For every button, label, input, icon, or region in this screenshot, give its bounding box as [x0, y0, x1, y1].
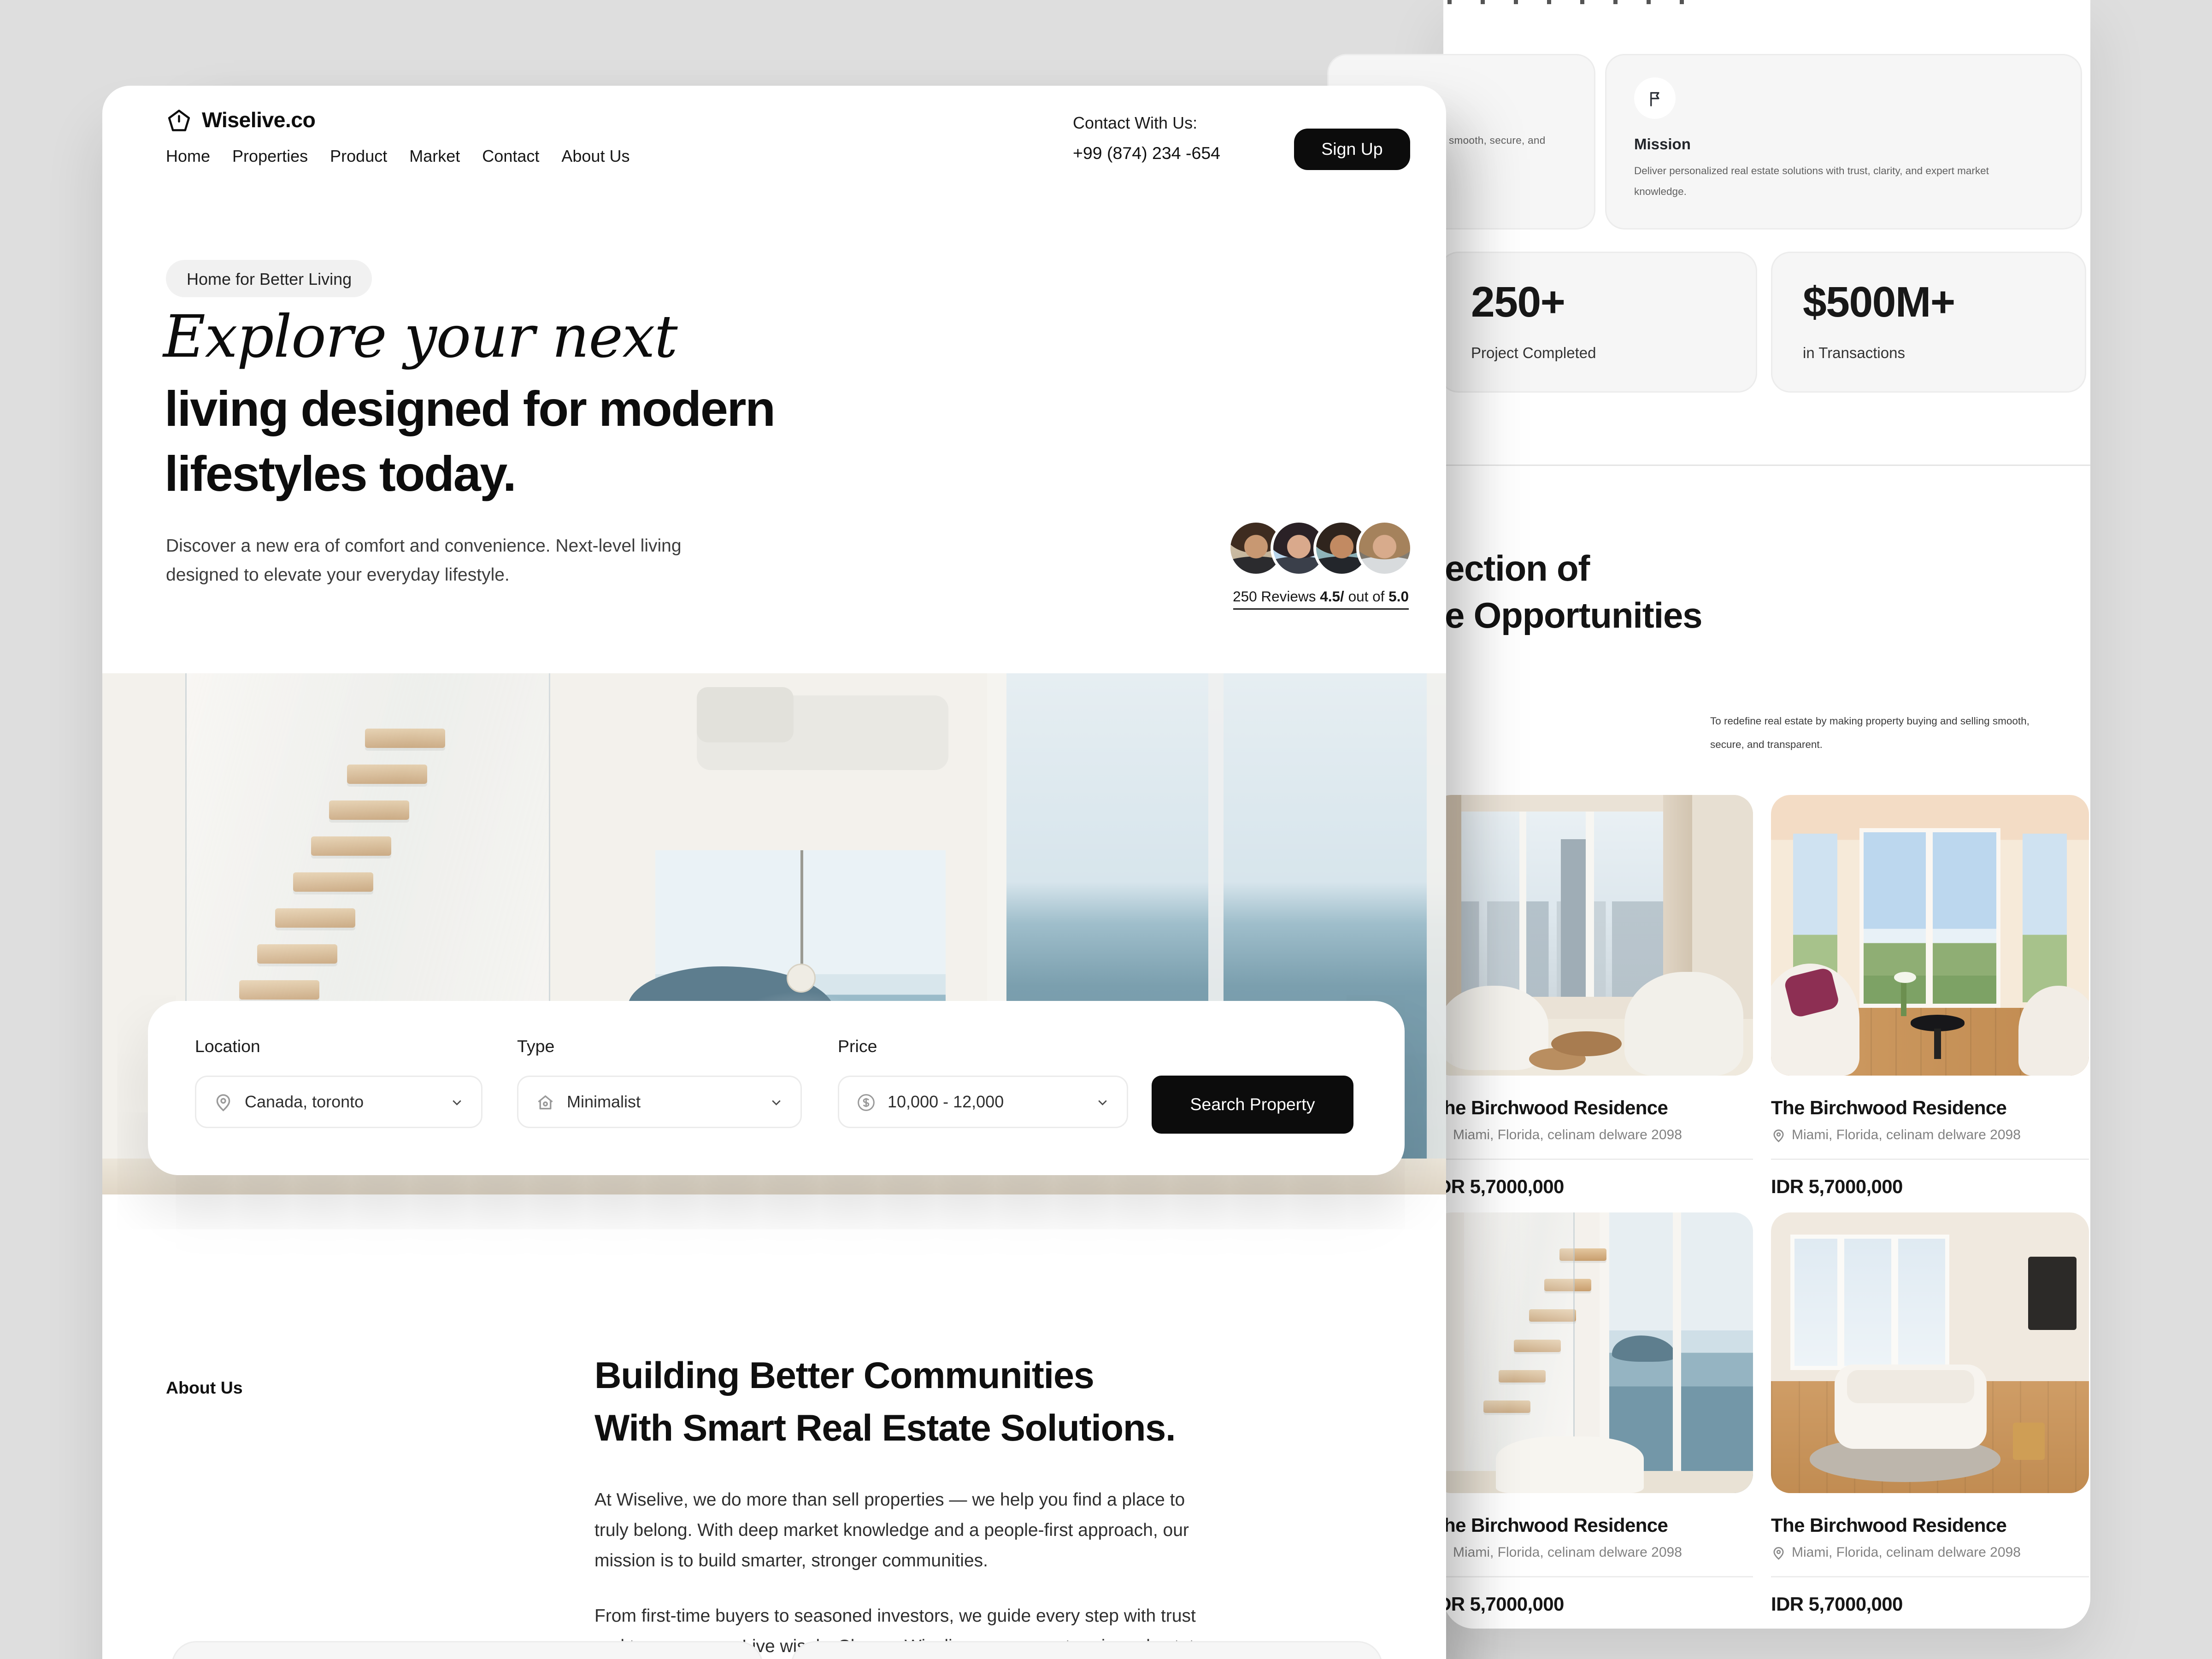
back-page: smooth, secure, and Mission Deliver pers…: [1443, 0, 2090, 1629]
logo[interactable]: Wiselive.co: [166, 108, 315, 134]
decor: [697, 687, 794, 742]
decor: [1935, 1028, 1941, 1059]
pin-icon: [213, 1092, 234, 1112]
decor: [2029, 1257, 2077, 1330]
property-photo-bay-window: [1771, 795, 2089, 1076]
reviews-count: 250 Reviews: [1233, 589, 1316, 606]
property-price: IDR 5,7000,000: [1432, 1593, 1753, 1615]
hero-title-line2: living designed for modern: [165, 380, 775, 438]
property-location: Miami, Florida, celinam delware 2098: [1771, 1128, 2089, 1143]
home-pentagon-icon: [166, 108, 192, 134]
search-property-button[interactable]: Search Property: [1152, 1076, 1353, 1134]
decor: [1901, 980, 1906, 1017]
reviews-max: 5.0: [1388, 589, 1409, 606]
stat-card-projects: 250+ Project Completed: [1439, 252, 1757, 393]
hero-title-line3: lifestyles today.: [165, 445, 516, 503]
decor: [1860, 829, 2000, 1008]
nav-market[interactable]: Market: [409, 147, 460, 166]
stat-label: in Transactions: [1803, 346, 2054, 362]
nav-product[interactable]: Product: [330, 147, 387, 166]
decor: [800, 850, 803, 966]
divider: [1432, 1576, 1753, 1577]
reviews-rating: 4.5/: [1320, 589, 1344, 606]
nav-contact[interactable]: Contact: [482, 147, 539, 166]
price-value: 10,000 - 12,000: [888, 1092, 1084, 1112]
location-select[interactable]: Canada, toronto: [195, 1076, 482, 1128]
feature-card-partial: [791, 1641, 1382, 1659]
nav-home[interactable]: Home: [166, 147, 210, 166]
property-price: IDR 5,7000,000: [1771, 1593, 2089, 1615]
property-search-panel: Location Type Price Canada, toronto Mini…: [148, 1001, 1405, 1175]
location-text: Miami, Florida, celinam delware 2098: [1792, 1546, 2021, 1561]
decor: [2019, 986, 2089, 1076]
stat-value: $500M+: [1803, 278, 2054, 328]
contact-label: Contact With Us:: [1073, 113, 1197, 133]
property-location: Miami, Florida, celinam delware 2098: [1771, 1546, 2089, 1561]
reviews-link[interactable]: 250 Reviews 4.5/ out of 5.0: [1233, 589, 1409, 610]
subtitle-line1: To redefine real estate by making proper…: [1710, 715, 2030, 727]
dollar-coin-icon: [856, 1092, 877, 1112]
divider: [1432, 465, 2090, 466]
decor: [1519, 812, 1527, 997]
chevron-down-icon: [449, 1094, 465, 1110]
decor: [1847, 1370, 1975, 1403]
decor: [2022, 834, 2067, 1002]
property-location: Miami, Florida, celinam delware 2098: [1432, 1128, 1753, 1143]
divider: [1771, 1576, 2089, 1577]
location-text: Miami, Florida, celinam delware 2098: [1792, 1128, 2021, 1143]
hero-description: Discover a new era of comfort and conven…: [166, 531, 682, 589]
subtitle-line2: secure, and transparent.: [1710, 738, 1823, 751]
section-heading-fragment: ection of: [1445, 547, 1589, 590]
contact-phone[interactable]: +99 (874) 234 -654: [1073, 144, 1220, 163]
price-label: Price: [838, 1037, 877, 1056]
about-heading-line2: With Smart Real Estate Solutions.: [594, 1407, 1175, 1450]
section-heading-fragment: e Opportunities: [1445, 594, 1702, 637]
section-subtitle: To redefine real estate by making proper…: [1710, 709, 2067, 756]
property-photo-staircase: [1432, 1212, 1753, 1493]
main-nav: Home Properties Product Market Contact A…: [166, 147, 629, 166]
property-title: The Birchwood Residence: [1432, 1514, 1753, 1536]
mission-text-line2: knowledge.: [1634, 185, 1687, 197]
decor: [1496, 1437, 1644, 1493]
type-value: Minimalist: [567, 1092, 758, 1112]
decor: [1586, 812, 1594, 997]
nav-about-us[interactable]: About Us: [561, 147, 629, 166]
decor: [1427, 673, 1446, 1194]
decor: [1560, 840, 1589, 997]
clipped-text-fragment: [1447, 0, 1685, 4]
stat-card-transactions: $500M+ in Transactions: [1771, 252, 2086, 393]
property-photo-living-room: [1432, 795, 1753, 1076]
logo-text: Wiselive.co: [202, 109, 315, 134]
avatar: [1356, 520, 1413, 577]
front-page: Wiselive.co Home Properties Product Mark…: [102, 86, 1446, 1659]
mission-text-line1: Deliver personalized real estate solutio…: [1634, 165, 1989, 177]
hero-title-italic: Explore your next: [163, 303, 677, 371]
decor: [1551, 1031, 1621, 1056]
divider: [1771, 1159, 2089, 1160]
nav-properties[interactable]: Properties: [232, 147, 308, 166]
property-card[interactable]: The Birchwood Residence Miami, Florida, …: [1432, 795, 1753, 1197]
vision-text-fragment: smooth, secure, and: [1449, 134, 1546, 147]
location-value: Canada, toronto: [245, 1092, 438, 1112]
property-card[interactable]: The Birchwood Residence Miami, Florida, …: [1432, 1212, 1753, 1615]
decor: [1790, 1235, 1949, 1370]
about-paragraph-1: At Wiselive, we do more than sell proper…: [594, 1485, 1212, 1576]
feature-card-partial: [171, 1641, 763, 1659]
property-photo-cozy-room: [1771, 1212, 2089, 1493]
type-label: Type: [517, 1037, 554, 1056]
stat-value: 250+: [1471, 278, 1725, 328]
house-icon: [535, 1092, 556, 1112]
stat-label: Project Completed: [1471, 346, 1725, 362]
property-location: Miami, Florida, celinam delware 2098: [1432, 1546, 1753, 1561]
hero-desc-line2: designed to elevate your everyday lifest…: [166, 564, 510, 585]
pin-icon: [1771, 1128, 1786, 1143]
pin-icon: [1771, 1546, 1786, 1561]
mission-card: Mission Deliver personalized real estate…: [1605, 54, 2082, 229]
mission-text: Deliver personalized real estate solutio…: [1634, 162, 2053, 202]
reviews-of: out of: [1348, 589, 1385, 606]
property-price: IDR 5,7000,000: [1771, 1175, 2089, 1197]
canvas: smooth, secure, and Mission Deliver pers…: [0, 0, 2212, 1659]
hero-badge: Home for Better Living: [166, 260, 372, 297]
property-title: The Birchwood Residence: [1432, 1096, 1753, 1118]
location-text: Miami, Florida, celinam delware 2098: [1453, 1546, 1682, 1561]
price-select[interactable]: 10,000 - 12,000: [838, 1076, 1128, 1128]
about-section-label: About Us: [166, 1378, 243, 1398]
mission-title: Mission: [1634, 137, 2053, 153]
location-label: Location: [195, 1037, 260, 1056]
type-select[interactable]: Minimalist: [517, 1076, 802, 1128]
about-heading-line1: Building Better Communities: [594, 1355, 1094, 1398]
divider: [1432, 1159, 1753, 1160]
flag-icon: [1634, 77, 1676, 119]
decor: [787, 964, 816, 993]
decor: [1673, 1212, 1681, 1493]
decor: [1625, 972, 1743, 1076]
property-title: The Birchwood Residence: [1771, 1514, 2089, 1536]
hero-desc-line1: Discover a new era of comfort and conven…: [166, 535, 682, 556]
location-text: Miami, Florida, celinam delware 2098: [1453, 1128, 1682, 1143]
decor: [1894, 972, 1916, 983]
property-card[interactable]: The Birchwood Residence Miami, Florida, …: [1771, 1212, 2089, 1615]
chevron-down-icon: [1095, 1094, 1110, 1110]
property-title: The Birchwood Residence: [1771, 1096, 2089, 1118]
sign-up-button[interactable]: Sign Up: [1294, 129, 1410, 170]
property-card[interactable]: The Birchwood Residence Miami, Florida, …: [1771, 795, 2089, 1197]
property-price: IDR 5,7000,000: [1432, 1175, 1753, 1197]
chevron-down-icon: [769, 1094, 784, 1110]
decor: [2012, 1423, 2044, 1459]
